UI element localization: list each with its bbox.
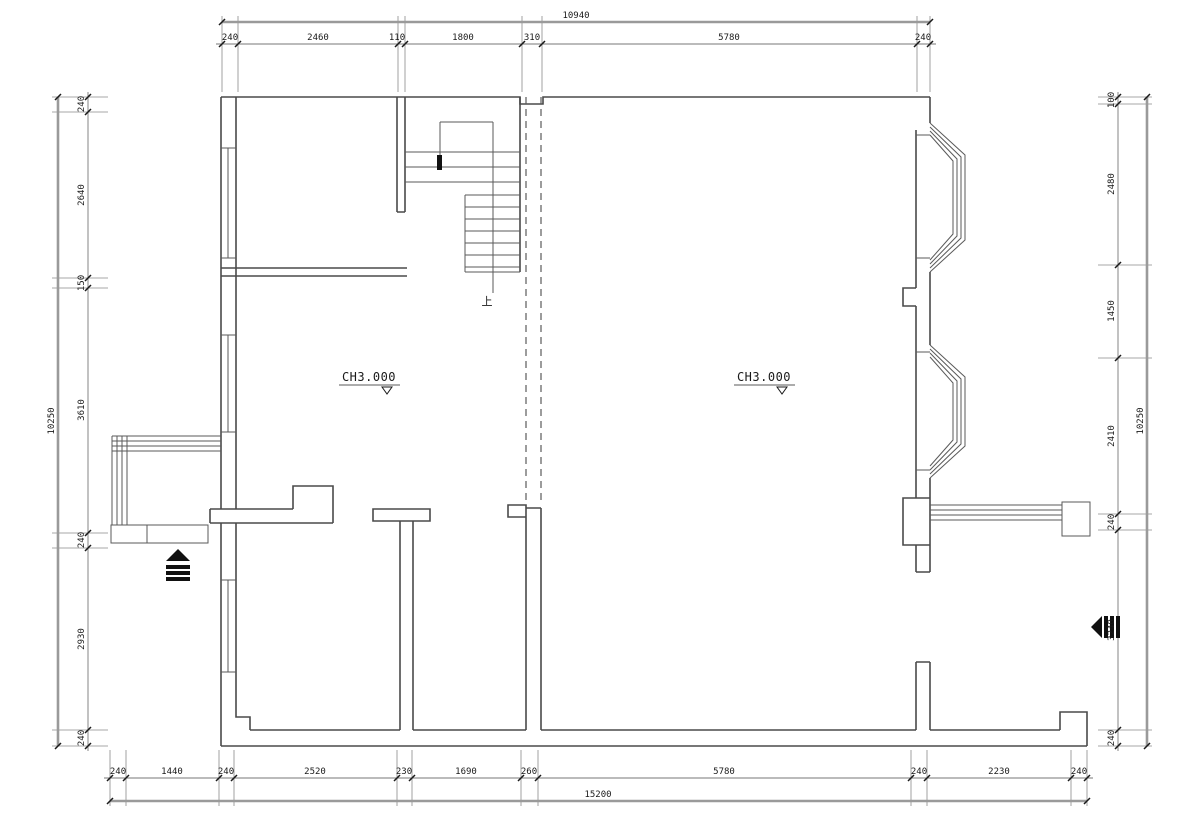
dim-label: 240 — [911, 767, 927, 777]
section-marker-left — [166, 549, 190, 579]
left-room-height-label: CH3.000 — [342, 370, 396, 384]
section-marker-left-bars — [166, 567, 190, 579]
dim-label: 240 — [110, 767, 126, 777]
bay-window-top — [916, 123, 965, 272]
right-dimension-labels: 100 2480 1450 2410 240 3240 240 10250 — [1107, 92, 1146, 746]
dim-label: 2460 — [307, 33, 329, 43]
dim-label: 240 — [1107, 730, 1117, 746]
dim-label: 150 — [77, 275, 87, 291]
room-labels: CH3.000 CH3.000 — [339, 370, 795, 394]
dim-label: 2930 — [77, 628, 87, 650]
dim-label: 240 — [77, 730, 87, 746]
bay-window-bottom — [916, 345, 965, 478]
dim-label: 240 — [77, 532, 87, 548]
left-room-elevation-triangle — [382, 387, 392, 394]
walls — [210, 97, 1087, 746]
top-wall — [221, 97, 930, 104]
dim-label: 110 — [389, 33, 405, 43]
windows — [221, 148, 236, 672]
stair-landing-lines — [405, 152, 520, 182]
extension-lines — [52, 16, 1152, 806]
dim-label: 2410 — [1107, 425, 1117, 447]
dim-label: 240 — [222, 33, 238, 43]
top-dimension-labels: 10940 240 2460 110 1800 310 5780 240 — [222, 11, 931, 43]
dim-total-label: 15200 — [584, 790, 611, 800]
staircase: 上 — [405, 122, 520, 308]
dim-label: 3240 — [1107, 619, 1117, 641]
stair-direction-arrow-tail — [437, 155, 442, 170]
dim-label: 310 — [524, 33, 540, 43]
dim-label: 240 — [1107, 514, 1117, 530]
left-balcony — [111, 436, 221, 543]
balcony-ledge — [111, 525, 208, 543]
dim-label: 100 — [1107, 92, 1117, 108]
right-room-height-label: CH3.000 — [737, 370, 791, 384]
bay-windows — [916, 123, 965, 478]
interior-wall-t-pillar — [373, 509, 430, 730]
dimension-ticks — [55, 19, 1150, 804]
interior-wall-middle — [508, 505, 541, 730]
dim-label: 5780 — [718, 33, 740, 43]
floor-plan-drawing: 上 CH3.000 CH3.000 10940 240 2460 110 180… — [0, 0, 1200, 817]
dim-total-label: 10940 — [562, 11, 589, 21]
right-wall — [903, 97, 930, 730]
dim-label: 240 — [1071, 767, 1087, 777]
left-dimension-labels: 240 2640 150 3610 240 2930 240 10250 — [47, 96, 87, 746]
dim-label: 240 — [218, 767, 234, 777]
dim-total-label: 10250 — [1136, 407, 1146, 434]
right-terrace — [930, 502, 1090, 536]
left-wall-windows — [221, 148, 236, 672]
floor-plan-page: 上 CH3.000 CH3.000 10940 240 2460 110 180… — [0, 0, 1200, 817]
bottom-wall — [221, 712, 1087, 746]
dim-label: 2230 — [988, 767, 1010, 777]
dim-total-label: 10250 — [47, 407, 57, 434]
dim-label: 2640 — [77, 184, 87, 206]
top-extension-lines — [222, 16, 930, 92]
stair-wall-strip — [397, 97, 405, 212]
dashed-lines — [526, 97, 541, 505]
left-wall — [221, 97, 250, 746]
bottom-dimension-labels: 240 1440 240 2520 230 1690 260 5780 240 … — [110, 767, 1087, 800]
right-room-elevation-triangle — [777, 387, 787, 394]
terrace-post — [1062, 502, 1090, 536]
dim-label: 1800 — [452, 33, 474, 43]
dim-label: 240 — [77, 96, 87, 112]
dim-label: 5780 — [713, 767, 735, 777]
dim-label: 2480 — [1107, 173, 1117, 195]
dim-label: 1450 — [1107, 300, 1117, 322]
section-marker-up-triangle — [166, 549, 190, 561]
terrace-railing — [930, 505, 1062, 520]
dim-label: 1440 — [161, 767, 183, 777]
interior-wall-top-left-room — [221, 268, 407, 276]
dim-label: 2520 — [304, 767, 326, 777]
dim-label: 240 — [915, 33, 931, 43]
stair-up-label: 上 — [482, 295, 493, 308]
balcony-railing — [112, 436, 221, 525]
dim-label: 3610 — [77, 399, 87, 421]
section-marker-left-triangle — [1091, 616, 1102, 638]
entry-wall — [210, 486, 333, 523]
dim-label: 260 — [521, 767, 537, 777]
dim-label: 1690 — [455, 767, 477, 777]
dim-label: 230 — [396, 767, 412, 777]
